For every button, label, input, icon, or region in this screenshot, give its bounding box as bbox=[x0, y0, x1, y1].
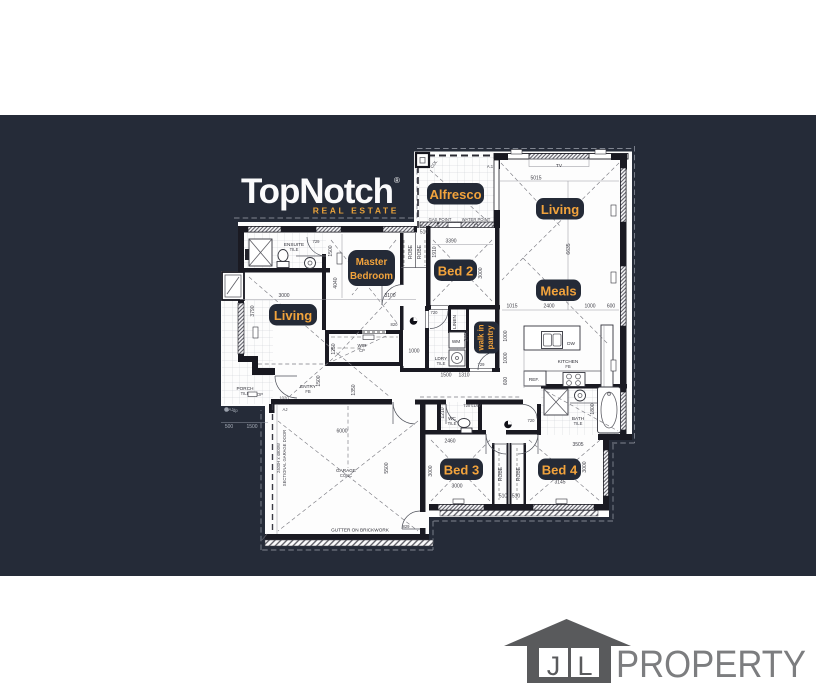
svg-text:2460: 2460 bbox=[444, 439, 455, 445]
svg-text:1500: 1500 bbox=[440, 373, 451, 379]
svg-text:Bed 3: Bed 3 bbox=[444, 463, 479, 478]
svg-text:Alfresco: Alfresco bbox=[429, 187, 481, 202]
svg-text:2440: 2440 bbox=[464, 330, 470, 341]
svg-text:1310: 1310 bbox=[458, 373, 469, 379]
svg-text:3790: 3790 bbox=[250, 305, 256, 316]
svg-text:Master: Master bbox=[356, 257, 388, 268]
svg-text:1000: 1000 bbox=[503, 330, 509, 341]
svg-text:729: 729 bbox=[313, 239, 321, 244]
svg-text:TILE: TILE bbox=[448, 421, 457, 426]
svg-text:ROBE: ROBE bbox=[498, 466, 504, 481]
svg-text:510: 510 bbox=[512, 494, 521, 500]
svg-text:6635: 6635 bbox=[566, 243, 572, 254]
svg-text:Living: Living bbox=[274, 308, 312, 323]
svg-text:LINEN: LINEN bbox=[452, 315, 457, 329]
svg-text:CP: CP bbox=[359, 348, 365, 353]
svg-text:1500: 1500 bbox=[328, 245, 334, 256]
svg-text:510: 510 bbox=[420, 230, 429, 236]
svg-text:A.1: A.1 bbox=[421, 224, 428, 229]
svg-text:1015: 1015 bbox=[506, 304, 517, 310]
svg-text:720 LDW: 720 LDW bbox=[463, 403, 481, 408]
svg-text:WATER POINT: WATER POINT bbox=[462, 217, 491, 222]
svg-text:1000: 1000 bbox=[408, 349, 419, 355]
svg-text:TILE: TILE bbox=[290, 247, 299, 252]
svg-text:1910: 1910 bbox=[432, 246, 438, 257]
svg-text:Bed 4: Bed 4 bbox=[542, 463, 578, 478]
svg-text:1000: 1000 bbox=[584, 304, 595, 310]
svg-text:5015: 5015 bbox=[530, 176, 541, 182]
svg-text:PROPERTY: PROPERTY bbox=[616, 644, 806, 686]
svg-text:3145: 3145 bbox=[554, 480, 565, 486]
svg-text:1000: 1000 bbox=[503, 352, 509, 363]
svg-text:Living: Living bbox=[541, 202, 579, 217]
svg-text:1500: 1500 bbox=[316, 375, 322, 386]
svg-text:720: 720 bbox=[431, 310, 439, 315]
svg-text:J: J bbox=[547, 651, 561, 681]
svg-text:6000: 6000 bbox=[336, 429, 347, 435]
svg-text:Bedroom: Bedroom bbox=[350, 271, 393, 282]
svg-text:3000: 3000 bbox=[582, 461, 588, 472]
svg-text:GAS POINT: GAS POINT bbox=[429, 217, 452, 222]
svg-text:A.1: A.1 bbox=[487, 164, 494, 169]
svg-text:3000: 3000 bbox=[278, 293, 289, 299]
svg-text:3505: 3505 bbox=[572, 442, 583, 448]
svg-text:5500: 5500 bbox=[384, 462, 390, 473]
svg-text:dp: dp bbox=[233, 408, 238, 413]
svg-text:L: L bbox=[577, 651, 592, 681]
svg-text:walk in: walk in bbox=[477, 324, 486, 351]
svg-text:1800: 1800 bbox=[590, 403, 596, 414]
svg-text:820: 820 bbox=[391, 322, 399, 327]
svg-text:Meals: Meals bbox=[540, 284, 576, 299]
svg-text:ROBE: ROBE bbox=[408, 244, 414, 259]
svg-text:4040: 4040 bbox=[333, 277, 339, 288]
svg-text:3000: 3000 bbox=[428, 465, 434, 476]
svg-text:1250: 1250 bbox=[331, 343, 337, 354]
svg-text:CONC: CONC bbox=[340, 473, 352, 478]
svg-text:AJ: AJ bbox=[283, 407, 288, 412]
svg-text:GUTTER ON BRICKWORK: GUTTER ON BRICKWORK bbox=[331, 528, 390, 533]
svg-text:1210: 1210 bbox=[440, 407, 446, 418]
svg-text:3100: 3100 bbox=[384, 293, 395, 299]
svg-text:ROBE: ROBE bbox=[516, 466, 522, 481]
svg-text:829: 829 bbox=[403, 524, 411, 529]
svg-text:FB: FB bbox=[565, 364, 571, 369]
svg-text:3000: 3000 bbox=[478, 267, 484, 278]
svg-text:TILE: TILE bbox=[574, 421, 583, 426]
svg-text:REF.: REF. bbox=[529, 377, 539, 382]
svg-text:pantry: pantry bbox=[486, 325, 495, 349]
svg-text:729: 729 bbox=[478, 362, 486, 367]
svg-text:TV: TV bbox=[556, 163, 563, 168]
svg-text:1500: 1500 bbox=[246, 424, 257, 430]
svg-text:REAL ESTATE: REAL ESTATE bbox=[313, 206, 399, 216]
svg-text:ROBE: ROBE bbox=[417, 244, 423, 259]
svg-text:3000: 3000 bbox=[451, 484, 462, 490]
svg-text:FB: FB bbox=[305, 389, 311, 394]
svg-text:720: 720 bbox=[528, 418, 536, 423]
svg-text:2400: 2400 bbox=[543, 304, 554, 310]
svg-text:TILE: TILE bbox=[437, 361, 446, 366]
svg-text:DW: DW bbox=[567, 341, 575, 346]
svg-text:1020: 1020 bbox=[279, 396, 289, 401]
svg-text:1350: 1350 bbox=[351, 384, 357, 395]
svg-text:®: ® bbox=[394, 176, 400, 185]
svg-text:OP: OP bbox=[257, 392, 263, 397]
svg-text:SECTIONAL GARAGE DOOR: SECTIONAL GARAGE DOOR bbox=[282, 430, 287, 486]
svg-text:600: 600 bbox=[607, 304, 616, 310]
svg-text:2400H x 4800W: 2400H x 4800W bbox=[276, 443, 281, 473]
svg-text:Bed 2: Bed 2 bbox=[438, 264, 473, 279]
svg-text:600: 600 bbox=[503, 377, 509, 386]
svg-text:WM: WM bbox=[452, 339, 460, 344]
svg-text:3390: 3390 bbox=[445, 239, 456, 245]
svg-text:500: 500 bbox=[225, 424, 234, 430]
svg-text:510: 510 bbox=[499, 494, 508, 500]
